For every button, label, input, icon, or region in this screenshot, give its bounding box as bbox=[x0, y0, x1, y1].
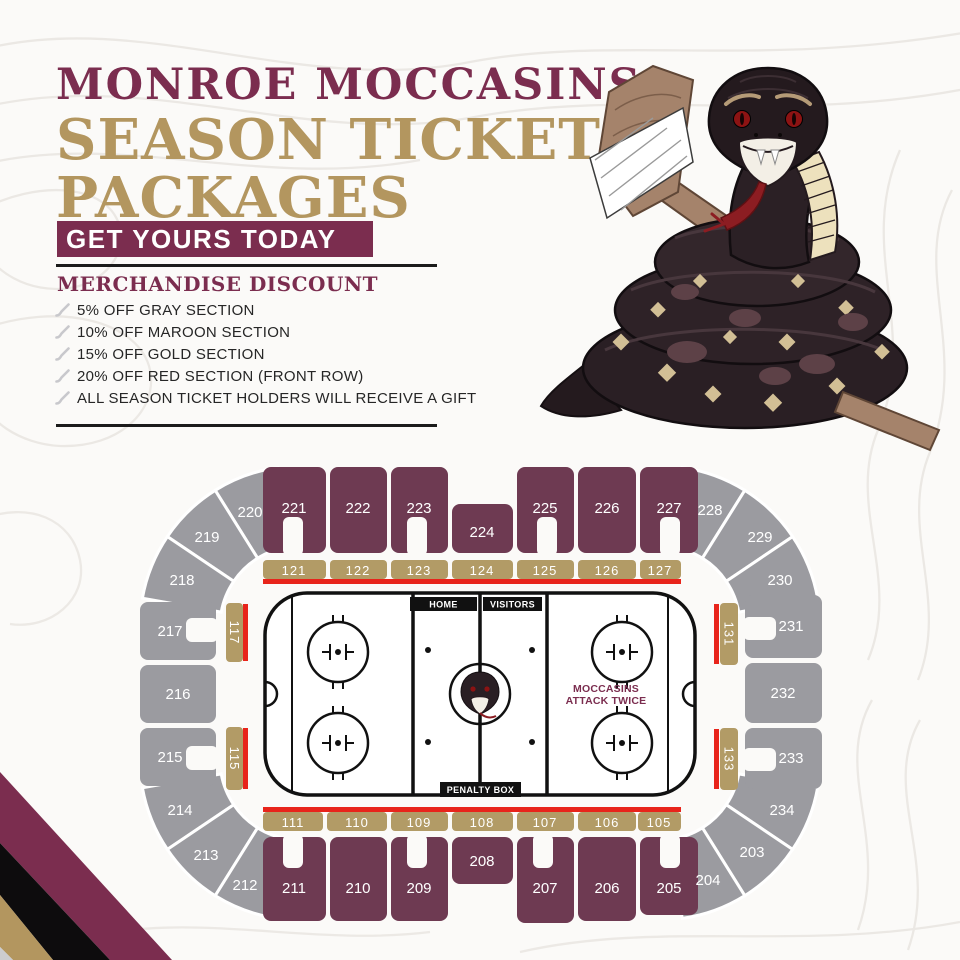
cta-banner: GET YOURS TODAY bbox=[57, 221, 373, 257]
hockey-stick-check-icon bbox=[54, 347, 71, 362]
svg-text:234: 234 bbox=[769, 802, 794, 819]
hockey-stick-check-icon bbox=[54, 391, 71, 406]
list-item-label: 5% OFF GRAY SECTION bbox=[77, 302, 255, 319]
list-item: 10% OFF MAROON SECTION bbox=[54, 321, 476, 343]
hockey-stick-check-icon bbox=[54, 325, 71, 340]
list-item: 15% OFF GOLD SECTION bbox=[54, 343, 476, 365]
svg-text:223: 223 bbox=[406, 500, 431, 517]
svg-text:204: 204 bbox=[695, 872, 720, 889]
section-206 bbox=[578, 837, 636, 921]
svg-text:208: 208 bbox=[469, 853, 494, 870]
season-ticket-poster: { "header": { "team": "MONROE MOCCASINS"… bbox=[0, 0, 960, 960]
svg-text:203: 203 bbox=[739, 844, 764, 861]
svg-text:117: 117 bbox=[227, 621, 242, 645]
svg-text:131: 131 bbox=[722, 622, 737, 647]
svg-text:205: 205 bbox=[656, 880, 681, 897]
hockey-stick-check-icon bbox=[54, 303, 71, 318]
svg-text:222: 222 bbox=[345, 500, 370, 517]
discount-list: 5% OFF GRAY SECTION 10% OFF MAROON SECTI… bbox=[54, 299, 476, 409]
svg-text:105: 105 bbox=[647, 815, 672, 830]
svg-text:229: 229 bbox=[747, 529, 772, 546]
svg-text:224: 224 bbox=[469, 524, 494, 541]
svg-text:110: 110 bbox=[345, 815, 369, 830]
section-210 bbox=[330, 837, 387, 921]
divider-bottom bbox=[56, 424, 437, 427]
svg-text:122: 122 bbox=[346, 563, 371, 578]
svg-text:121: 121 bbox=[282, 563, 307, 578]
slogan-line2: ATTACK TWICE bbox=[566, 695, 647, 707]
list-item: 5% OFF GRAY SECTION bbox=[54, 299, 476, 321]
maroon-sections-bottom bbox=[263, 837, 698, 923]
svg-text:225: 225 bbox=[532, 500, 557, 517]
home-label: HOME bbox=[429, 600, 458, 610]
svg-text:209: 209 bbox=[406, 880, 431, 897]
list-item-label: 15% OFF GOLD SECTION bbox=[77, 346, 265, 363]
svg-text:125: 125 bbox=[533, 563, 558, 578]
discount-heading: MERCHANDISE DISCOUNT bbox=[57, 272, 378, 296]
list-item: 20% OFF RED SECTION (FRONT ROW) bbox=[54, 365, 476, 387]
svg-text:230: 230 bbox=[767, 572, 792, 589]
svg-text:126: 126 bbox=[595, 563, 620, 578]
svg-text:219: 219 bbox=[194, 529, 219, 546]
svg-text:106: 106 bbox=[595, 815, 620, 830]
svg-text:218: 218 bbox=[169, 572, 194, 589]
svg-text:206: 206 bbox=[594, 880, 619, 897]
svg-text:107: 107 bbox=[533, 815, 558, 830]
hockey-rink: HOME VISITORS PENALTY BOX MOCCASINS ATTA… bbox=[265, 593, 695, 797]
slogan-line1: MOCCASINS bbox=[573, 683, 639, 695]
list-item-label: 20% OFF RED SECTION (FRONT ROW) bbox=[77, 368, 364, 385]
list-item-label: 10% OFF MAROON SECTION bbox=[77, 324, 290, 341]
visitors-label: VISITORS bbox=[490, 600, 535, 610]
svg-text:108: 108 bbox=[470, 815, 495, 830]
svg-text:221: 221 bbox=[281, 500, 306, 517]
svg-text:207: 207 bbox=[532, 880, 557, 897]
svg-text:217: 217 bbox=[157, 623, 182, 640]
moccasin-snake-mascot bbox=[535, 40, 955, 455]
svg-text:232: 232 bbox=[770, 685, 795, 702]
svg-text:127: 127 bbox=[648, 563, 673, 578]
svg-text:231: 231 bbox=[778, 618, 803, 635]
list-item-label: ALL SEASON TICKET HOLDERS WILL RECEIVE A… bbox=[77, 390, 476, 407]
list-item: ALL SEASON TICKET HOLDERS WILL RECEIVE A… bbox=[54, 387, 476, 409]
svg-text:220: 220 bbox=[237, 504, 262, 521]
svg-text:210: 210 bbox=[345, 880, 370, 897]
svg-text:133: 133 bbox=[722, 747, 737, 772]
svg-text:233: 233 bbox=[778, 750, 803, 767]
page-title-line2: PACKAGES bbox=[56, 170, 411, 226]
penalty-box-label: PENALTY BOX bbox=[447, 785, 515, 795]
svg-text:123: 123 bbox=[407, 563, 432, 578]
page-title-line1: SEASON TICKET bbox=[56, 112, 601, 168]
svg-text:227: 227 bbox=[656, 500, 681, 517]
hockey-stick-check-icon bbox=[54, 369, 71, 384]
divider-top bbox=[56, 264, 437, 267]
svg-text:124: 124 bbox=[470, 563, 495, 578]
corner-stripes bbox=[0, 700, 300, 960]
svg-text:228: 228 bbox=[697, 502, 722, 519]
svg-text:109: 109 bbox=[407, 815, 432, 830]
svg-text:226: 226 bbox=[594, 500, 619, 517]
